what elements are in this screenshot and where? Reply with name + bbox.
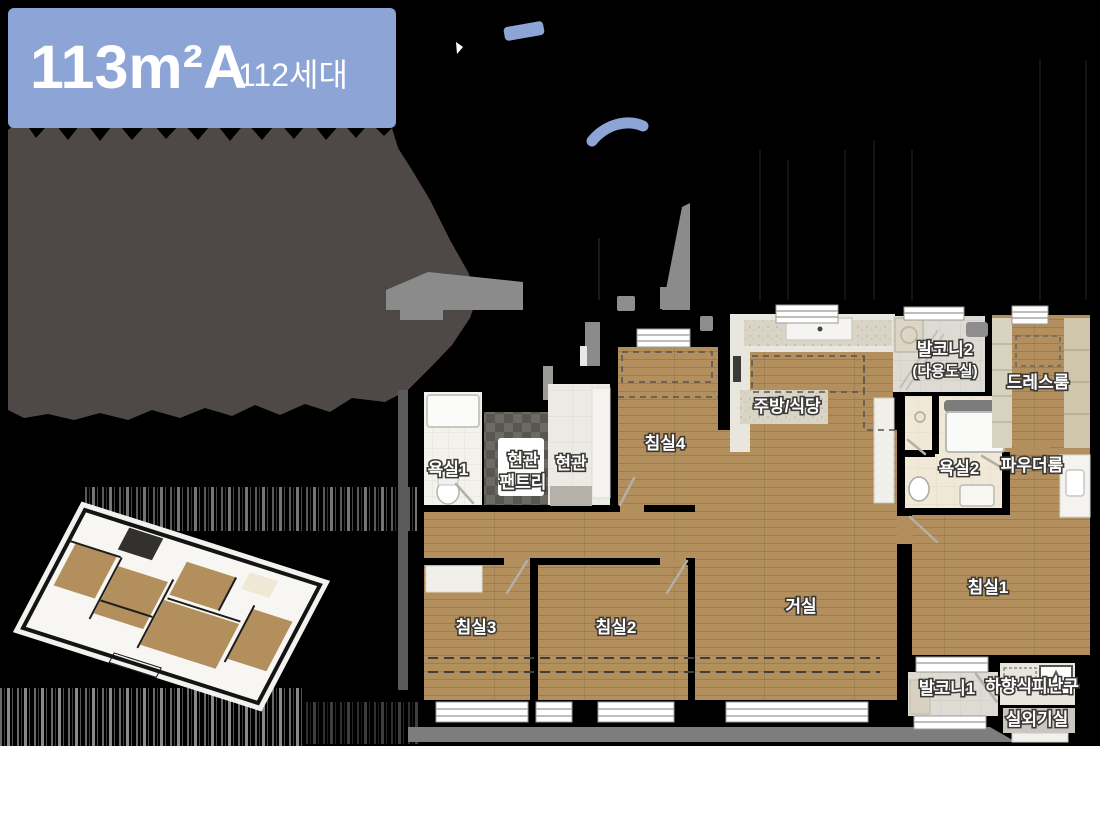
label-balcony1: 발코니1 [919,679,975,698]
label-living: 거실 [785,597,816,616]
label-bath2: 욕실2 [939,459,980,478]
room-powder [1060,455,1090,517]
scene: 113m²A 112세대 [0,0,1100,825]
room-living-floor [695,430,897,700]
label-entry-pantry-1: 현관 [507,451,539,470]
label-balcony2-2: (다용도실) [912,363,977,380]
label-bedroom2: 침실2 [596,617,637,637]
label-entry-pantry-2: 팬트리 [500,473,547,492]
label-entry: 현관 [555,454,587,473]
badge-area-label: 113m²A [30,33,247,101]
label-bath1: 욕실1 [428,460,469,479]
label-bedroom1: 침실1 [968,577,1009,597]
badge-units-label: 112세대 [238,57,348,93]
label-dressroom: 드레스룸 [1007,373,1070,392]
masked-blob [8,118,478,420]
label-bedroom4: 침실4 [645,433,686,453]
outer-wall-shade [398,390,408,690]
bedroom3-closet [426,566,482,592]
label-escape-hatch: 하향식피난구 [985,676,1079,696]
label-ac-room: 실외기실 [1006,710,1069,729]
label-bedroom3: 침실3 [456,617,497,637]
floor-plan-page: 113m²A 112세대 [0,0,1100,825]
label-powder: 파우더룸 [1001,456,1064,475]
room-bath1 [424,392,482,505]
label-kitchen: 주방/식당 [753,397,821,416]
label-balcony2-1: 발코니2 [917,340,973,359]
type-badge: 113m²A 112세대 [8,8,396,128]
room-entry [548,384,610,506]
room-bath2 [874,396,1004,508]
